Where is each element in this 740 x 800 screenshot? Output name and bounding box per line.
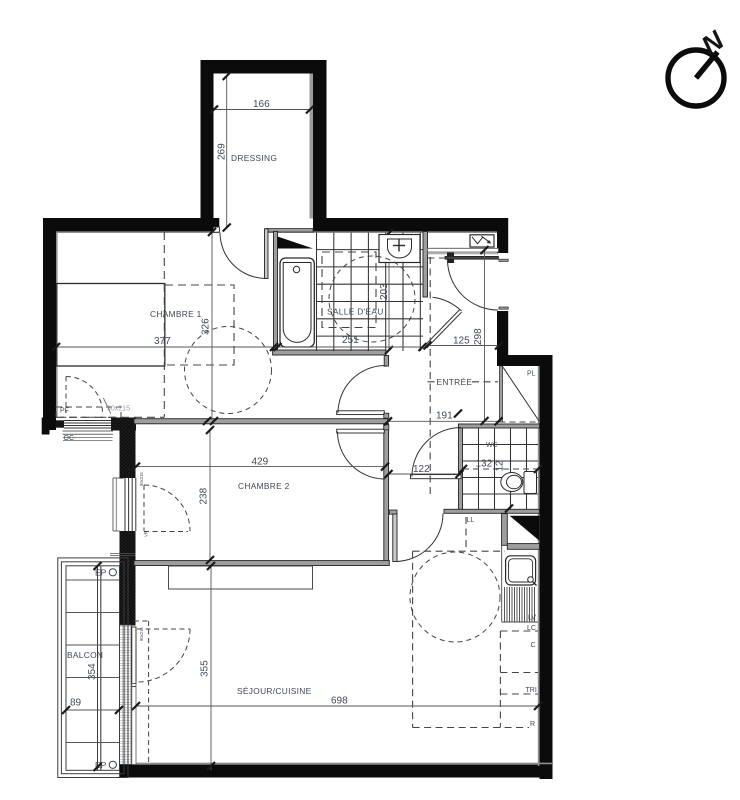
- svg-text:12: 12: [495, 460, 506, 472]
- svg-text:326: 326: [201, 318, 212, 335]
- svg-text:PL: PL: [527, 371, 536, 378]
- svg-text:CHAMBRE 2: CHAMBRE 2: [238, 481, 290, 491]
- svg-text:R: R: [530, 721, 535, 728]
- svg-text:LV: LV: [528, 615, 536, 622]
- svg-text:SÉJOUR/CUISINE: SÉJOUR/CUISINE: [237, 686, 312, 696]
- svg-text:698: 698: [331, 696, 348, 707]
- svg-text:90x215: 90x215: [139, 472, 144, 486]
- svg-text:203: 203: [379, 283, 390, 300]
- svg-text:LL: LL: [467, 517, 475, 524]
- svg-text:355: 355: [200, 660, 211, 677]
- svg-text:LC: LC: [527, 625, 536, 632]
- svg-text:377: 377: [154, 336, 171, 347]
- svg-text:89: 89: [70, 698, 82, 709]
- svg-text:90x215: 90x215: [107, 406, 130, 413]
- svg-text:DRESSING: DRESSING: [231, 153, 277, 163]
- svg-text:ENTRÉE: ENTRÉE: [437, 377, 473, 387]
- svg-text:VR: VR: [144, 531, 149, 537]
- svg-text:354: 354: [87, 663, 98, 680]
- svg-text:166: 166: [253, 99, 270, 110]
- svg-text:SALLE D'EAU: SALLE D'EAU: [327, 307, 384, 317]
- svg-text:WC: WC: [486, 442, 498, 449]
- svg-text:TRI: TRI: [526, 687, 537, 694]
- svg-text:251: 251: [342, 335, 359, 346]
- svg-text:122: 122: [413, 464, 430, 475]
- svg-text:429: 429: [252, 457, 269, 468]
- svg-text:PF: PF: [60, 408, 69, 415]
- svg-text:238: 238: [199, 487, 210, 504]
- svg-text:OC: OC: [64, 435, 75, 442]
- svg-text:269: 269: [217, 143, 228, 160]
- svg-text:132: 132: [476, 459, 493, 470]
- svg-text:C: C: [531, 642, 536, 649]
- svg-text:191: 191: [436, 411, 453, 422]
- svg-text:298: 298: [473, 328, 484, 345]
- svg-text:125: 125: [453, 336, 470, 347]
- svg-text:BALCON: BALCON: [67, 650, 103, 660]
- svg-text:CHAMBRE 1: CHAMBRE 1: [150, 309, 202, 319]
